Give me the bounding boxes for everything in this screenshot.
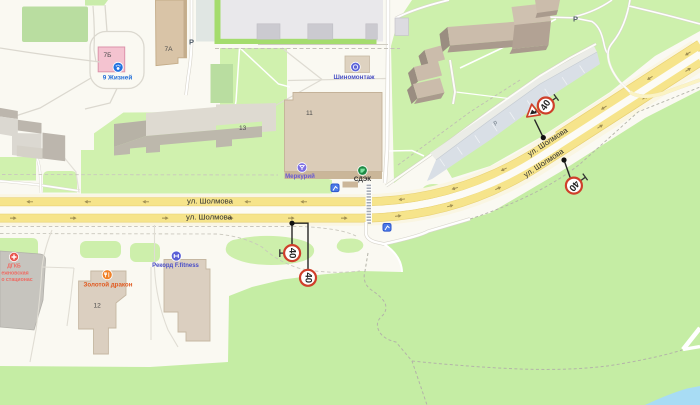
svg-text:Шиномонтаж: Шиномонтаж	[333, 74, 375, 81]
svg-text:40: 40	[287, 248, 298, 259]
svg-text:ул. Шолмова: ул. Шолмова	[186, 212, 233, 221]
svg-text:11: 11	[306, 110, 313, 117]
svg-text:7Б: 7Б	[104, 52, 112, 59]
svg-text:Золотой дракон: Золотой дракон	[84, 281, 133, 288]
svg-text:13: 13	[239, 125, 247, 132]
svg-text:Р: Р	[573, 15, 578, 24]
svg-text:Меркурий: Меркурий	[285, 173, 315, 180]
svg-text:7А: 7А	[165, 46, 174, 53]
svg-text:12: 12	[94, 303, 102, 310]
svg-text:СДЭК: СДЭК	[354, 176, 371, 183]
svg-text:о стационас: о стационас	[1, 277, 32, 283]
svg-text:Р: Р	[189, 38, 194, 47]
svg-text:9 Жизней: 9 Жизней	[103, 74, 133, 82]
svg-text:ул. Шолмова: ул. Шолмова	[187, 197, 234, 206]
svg-text:Рекорд F.fitness: Рекорд F.fitness	[152, 263, 199, 269]
svg-text:ДГКБ: ДГКБ	[7, 264, 21, 270]
svg-text:40: 40	[303, 273, 314, 284]
svg-text:ежновская: ежновская	[1, 271, 28, 277]
